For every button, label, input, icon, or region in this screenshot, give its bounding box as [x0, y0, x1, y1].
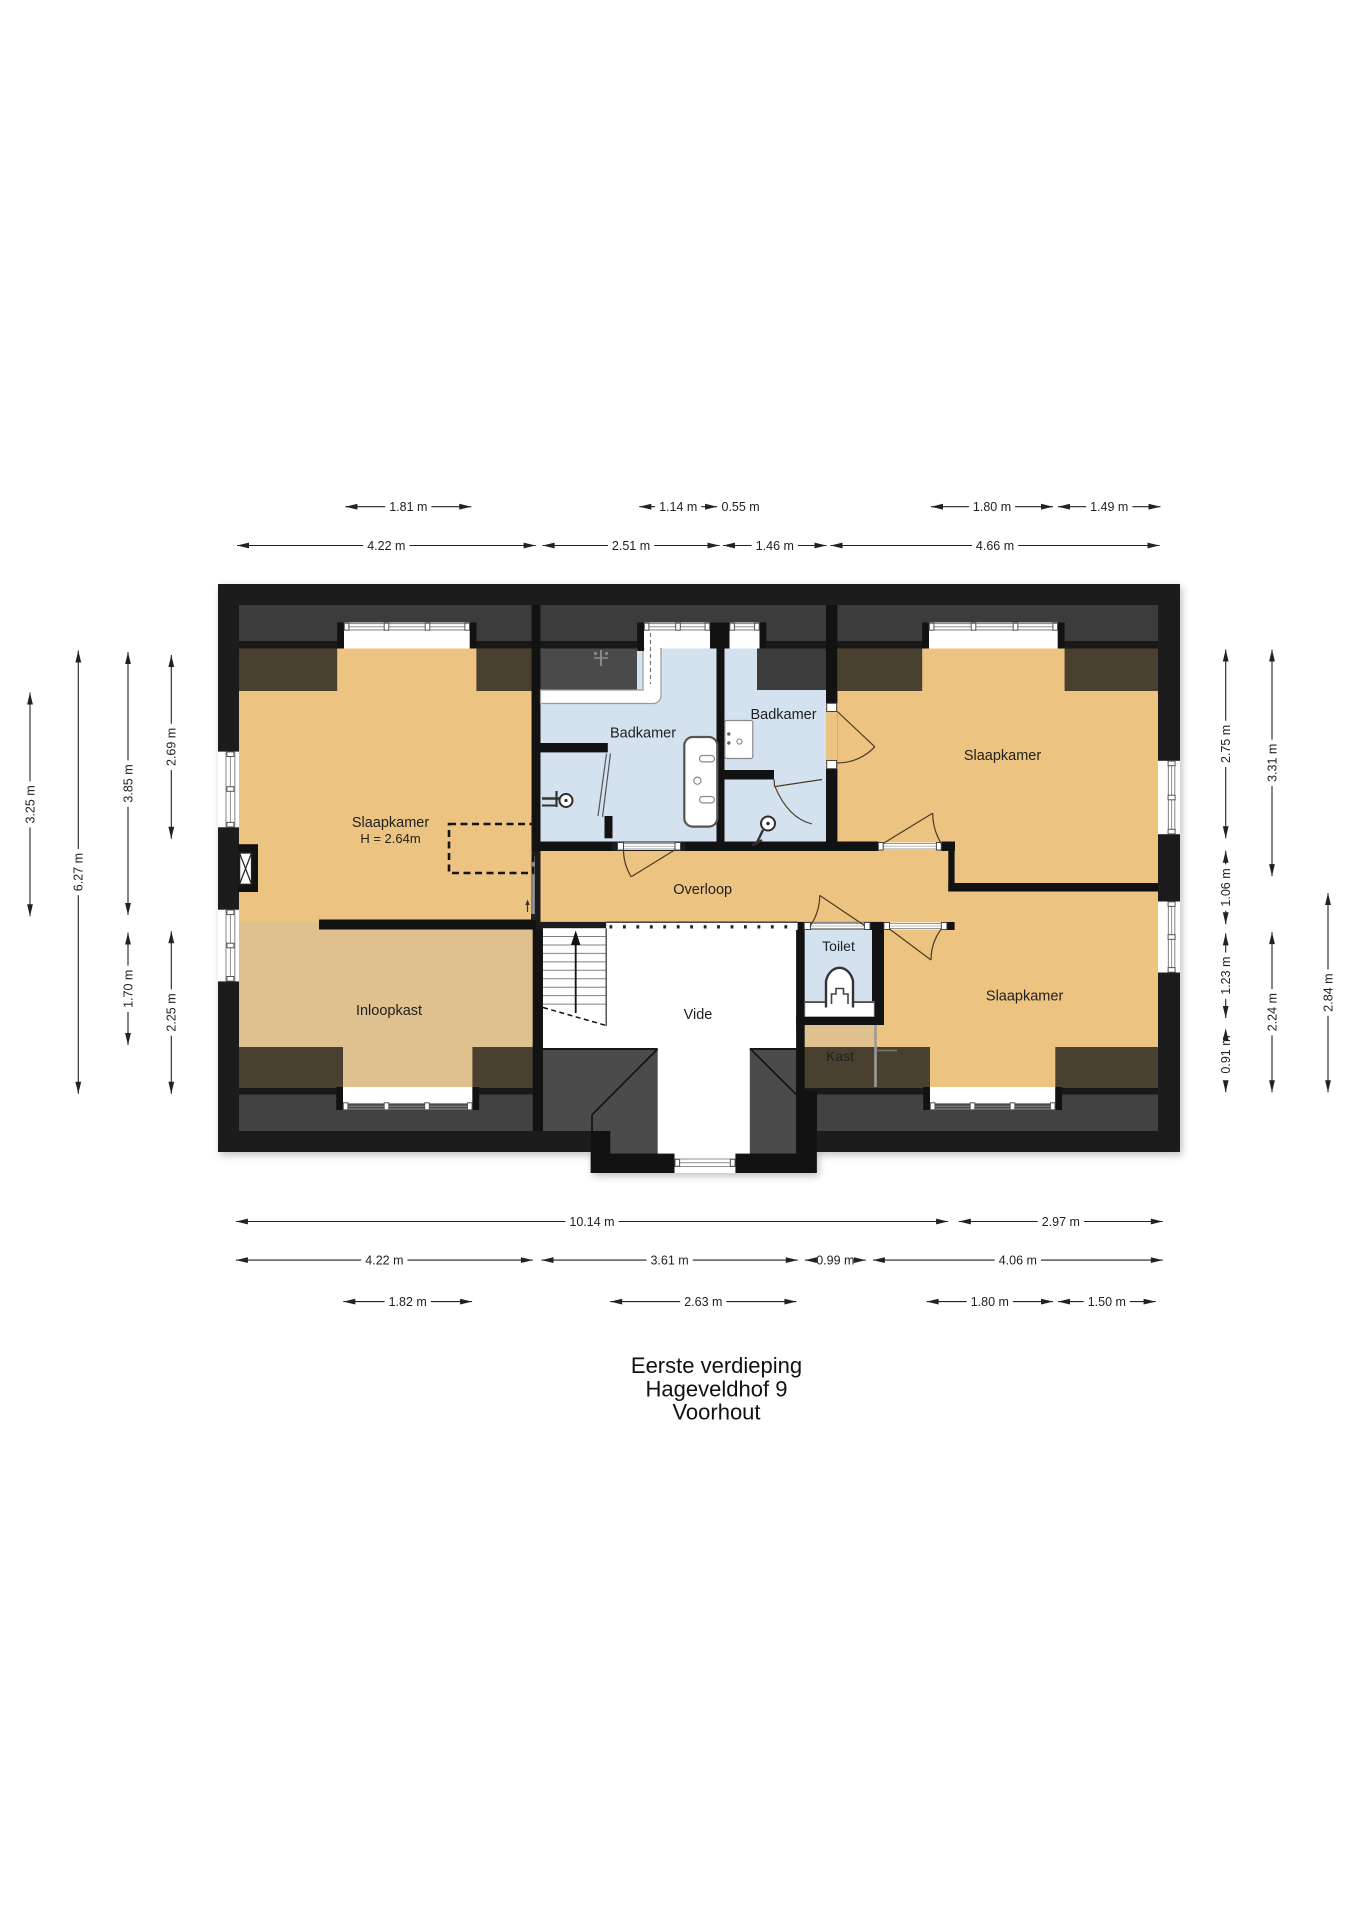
svg-text:Vide: Vide	[684, 1007, 713, 1023]
svg-text:2.97 m: 2.97 m	[1042, 1215, 1080, 1229]
svg-text:4.66 m: 4.66 m	[976, 539, 1014, 553]
svg-text:1.49 m: 1.49 m	[1090, 500, 1128, 514]
svg-text:Eerste verdieping: Eerste verdieping	[631, 1353, 802, 1378]
svg-text:Badkamer: Badkamer	[750, 707, 816, 723]
svg-text:2.63 m: 2.63 m	[684, 1295, 722, 1309]
svg-text:Overloop: Overloop	[673, 882, 732, 898]
svg-text:1.46 m: 1.46 m	[756, 539, 794, 553]
svg-text:Kast: Kast	[826, 1048, 854, 1064]
svg-text:3.25 m: 3.25 m	[23, 785, 37, 823]
svg-text:Voorhout: Voorhout	[672, 1400, 760, 1425]
svg-text:2.69 m: 2.69 m	[165, 728, 179, 766]
svg-text:4.06 m: 4.06 m	[999, 1254, 1037, 1268]
svg-text:3.61 m: 3.61 m	[650, 1254, 688, 1268]
svg-text:2.25 m: 2.25 m	[165, 993, 179, 1031]
svg-text:Slaapkamer: Slaapkamer	[986, 988, 1064, 1004]
svg-text:1.06 m: 1.06 m	[1219, 868, 1233, 906]
svg-text:3.31 m: 3.31 m	[1265, 744, 1279, 782]
svg-text:Badkamer: Badkamer	[610, 726, 676, 742]
svg-text:2.75 m: 2.75 m	[1219, 725, 1233, 763]
svg-text:1.14 m: 1.14 m	[659, 500, 697, 514]
svg-text:1.80 m: 1.80 m	[973, 500, 1011, 514]
svg-text:1.82 m: 1.82 m	[389, 1295, 427, 1309]
svg-text:3.85 m: 3.85 m	[121, 764, 135, 802]
svg-text:1.80 m: 1.80 m	[971, 1295, 1009, 1309]
svg-text:H = 2.64m: H = 2.64m	[360, 831, 420, 846]
svg-text:2.51 m: 2.51 m	[612, 539, 650, 553]
svg-text:1.70 m: 1.70 m	[121, 970, 135, 1008]
svg-text:Toilet: Toilet	[822, 938, 855, 954]
svg-text:6.27 m: 6.27 m	[72, 853, 86, 891]
svg-text:1.81 m: 1.81 m	[389, 500, 427, 514]
svg-text:4.22 m: 4.22 m	[365, 1254, 403, 1268]
svg-text:Slaapkamer: Slaapkamer	[964, 748, 1042, 764]
svg-text:1.23 m: 1.23 m	[1219, 957, 1233, 995]
svg-text:10.14 m: 10.14 m	[569, 1215, 614, 1229]
svg-text:Hageveldhof 9: Hageveldhof 9	[646, 1376, 788, 1401]
svg-text:2.24 m: 2.24 m	[1265, 993, 1279, 1031]
svg-text:0.55 m: 0.55 m	[722, 500, 760, 514]
svg-text:1.50 m: 1.50 m	[1088, 1295, 1126, 1309]
svg-text:4.22 m: 4.22 m	[367, 539, 405, 553]
svg-text:0.91 m: 0.91 m	[1219, 1035, 1233, 1073]
svg-text:2.84 m: 2.84 m	[1321, 973, 1335, 1011]
svg-text:Inloopkast: Inloopkast	[356, 1003, 422, 1019]
svg-text:Slaapkamer: Slaapkamer	[352, 815, 430, 831]
svg-text:0.99 m: 0.99 m	[816, 1254, 854, 1268]
